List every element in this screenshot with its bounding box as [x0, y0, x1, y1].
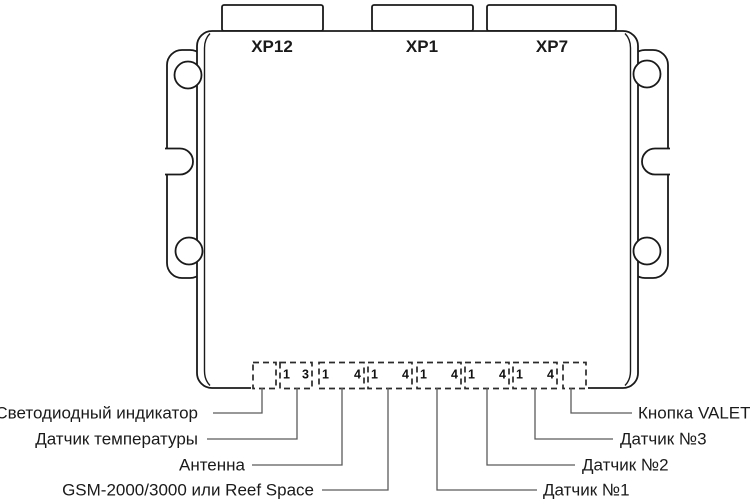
alarm-unit-diagram: XP12 XP1 XP7 1 3 1 4 1 4 1 4 1 4 1 4 [0, 0, 750, 502]
pin-number: 4 [451, 368, 458, 382]
pin-number: 1 [371, 368, 378, 382]
pin-number: 4 [354, 368, 361, 382]
top-connector-label-xp1: XP1 [406, 37, 438, 56]
callout-label-valet-button: Кнопка VALET [638, 404, 750, 423]
connector-housing-xp7 [487, 5, 616, 31]
pin-number: 1 [322, 368, 329, 382]
diagram-canvas: XP12 XP1 XP7 1 3 1 4 1 4 1 4 1 4 1 4 [0, 0, 750, 502]
pin-number: 1 [468, 368, 475, 382]
pin-number: 1 [283, 368, 290, 382]
connector-housing-xp1 [372, 5, 473, 31]
callout-label-antenna: Антенна [179, 456, 246, 475]
callout-label-sensor-2: Датчик №2 [582, 456, 669, 475]
leader-sensor-2 [487, 388, 575, 465]
callout-label-led-indicator: Светодиодный индикатор [0, 404, 198, 423]
callout-label-gsm-module: GSM-2000/3000 или Reef Space [62, 481, 314, 500]
top-connector-label-xp12: XP12 [251, 37, 293, 56]
flange-right-hole-bottom [634, 238, 661, 265]
callout-label-temperature-sensor: Датчик температуры [35, 430, 198, 449]
connector-housing-xp12 [222, 5, 323, 31]
pin-number: 1 [420, 368, 427, 382]
pin-number: 4 [499, 368, 506, 382]
leader-led-indicator [213, 388, 262, 413]
leader-gsm-module [322, 388, 388, 490]
flange-left-hole-bottom [176, 238, 203, 265]
pin-number: 4 [547, 368, 554, 382]
pin-number: 4 [402, 368, 409, 382]
pin-number: 1 [516, 368, 523, 382]
callout-label-sensor-1: Датчик №1 [543, 481, 630, 500]
top-connector-label-xp7: XP7 [536, 37, 568, 56]
device-body [197, 31, 638, 388]
leader-valet-button [571, 388, 632, 413]
pin-number: 3 [302, 368, 309, 382]
flange-left-hole-top [175, 62, 202, 89]
flange-right-hole-top [634, 61, 661, 88]
callout-leader-lines [207, 388, 632, 490]
callout-label-sensor-3: Датчик №3 [620, 430, 707, 449]
